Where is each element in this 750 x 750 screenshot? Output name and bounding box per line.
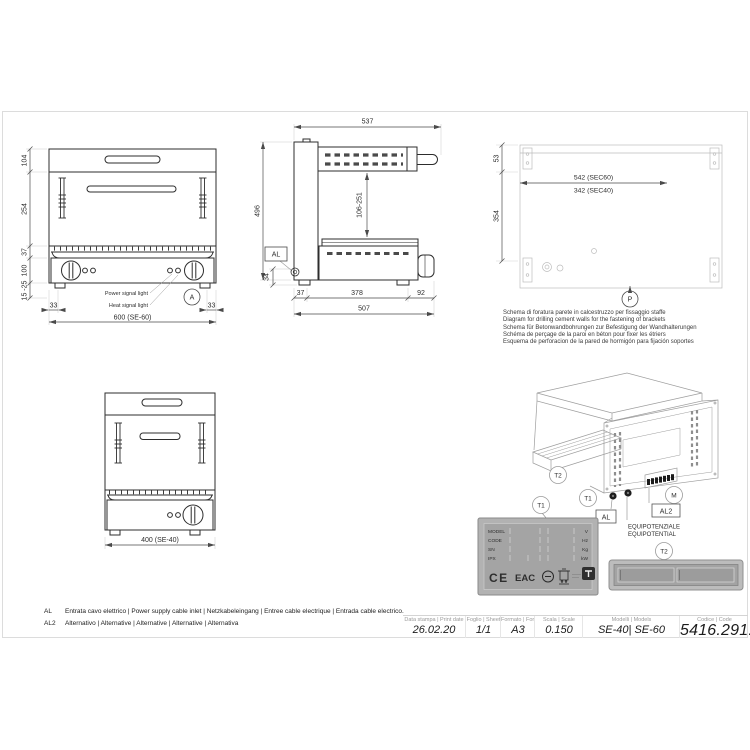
plate-code-label: CODE <box>488 538 502 544</box>
power-signal-light-label: Power signal light <box>105 291 149 297</box>
al-label-side: AL <box>272 252 281 259</box>
isometric-rear-view: T2 T1 T1 M T2 AL AL2 EQUIPOTENZIALE EQUI… <box>470 360 750 608</box>
titleblock-print-date: Data stampa | Print date 26.02.20 <box>403 616 465 638</box>
titleblock-scale: Scala | Scale 0.150 <box>534 616 583 638</box>
oven-body-side <box>291 139 438 285</box>
bracket-bottom-right <box>710 258 719 282</box>
bracket-top-right <box>710 148 719 169</box>
eac-mark: EAC <box>515 573 535 584</box>
drilling-note-fr: Schéma de perçage de la paroi en béton p… <box>503 332 697 339</box>
cable-hole-alt <box>557 265 563 271</box>
foot <box>299 280 310 285</box>
bracket-top-left <box>523 148 532 169</box>
models-value: SE-40| SE-60 <box>583 624 680 637</box>
signal-light <box>83 268 88 273</box>
callouts-front60: Power signal light Heat signal light A <box>105 274 200 309</box>
bracket-bottom-left <box>523 258 532 282</box>
door-handle-slot <box>140 433 180 440</box>
note-al2: AL2Alternativo | Alternative | Alternati… <box>44 618 404 630</box>
lift-handle <box>417 155 438 165</box>
dim-104: 104 <box>22 155 29 167</box>
dim-342-sec40: 342 (SEC40) <box>574 188 613 195</box>
label-t1-left: T1 <box>537 503 545 510</box>
dimension-lines-side <box>263 127 441 314</box>
note-al-text: Entrata cavo elettrico | Power supply ca… <box>65 608 404 615</box>
foot <box>55 283 65 288</box>
right-rail <box>199 178 207 218</box>
dim-600-se60: 600 (SE-60) <box>114 315 152 322</box>
plate-sn-label: SN <box>488 547 495 553</box>
sheet-label: Foglio | Sheet <box>466 617 501 624</box>
control-panel-front40 <box>107 500 213 530</box>
heat-signal-light <box>176 268 181 273</box>
scale-value: 0.150 <box>535 624 583 637</box>
grill-shelf <box>49 246 216 258</box>
iso-top-face <box>537 373 702 413</box>
print-date-value: 26.02.20 <box>403 624 465 637</box>
plate-kg-label: Kg <box>582 547 588 553</box>
dim-37-side: 37 <box>297 290 305 297</box>
dim-15-25: 15 -25 <box>22 280 29 300</box>
extension-lines-front60 <box>26 149 216 325</box>
sheet-value: 1/1 <box>466 624 501 637</box>
format-label: Formato | Format <box>501 617 535 624</box>
plate-model-label: MODEL <box>488 529 505 535</box>
power-signal-light <box>168 513 173 518</box>
control-panel-front60 <box>51 258 214 283</box>
label-t2-bottom: T2 <box>660 549 668 556</box>
dim-53: 53 <box>494 155 501 163</box>
front-view-se60: 104 254 37 100 15 -25 33 33 600 (SE-60) … <box>0 95 250 345</box>
note-al2-text: Alternativo | Alternative | Alternative … <box>65 620 238 627</box>
dim-354: 354 <box>494 210 501 222</box>
cable-inlet-notes: ALEntrata cavo elettrico | Power supply … <box>44 606 404 630</box>
label-equipotential: EQUIPOTENTIAL <box>628 532 677 538</box>
top-handle-slot <box>142 399 182 406</box>
knob-right <box>185 261 204 280</box>
al-callout-side: AL <box>265 247 291 270</box>
scale-label: Scala | Scale <box>535 617 583 624</box>
label-al: AL <box>602 515 611 522</box>
front-view-se40: 400 (SE-40) <box>95 385 230 565</box>
dim-34: 34 <box>264 273 271 281</box>
dim-400-se40: 400 (SE-40) <box>141 537 179 544</box>
code-value: 5416.291.00 <box>680 624 749 638</box>
dim-text-side: 537 496 106-251 34 37 378 92 507 <box>255 119 425 313</box>
label-t1-right: T1 <box>584 496 592 503</box>
plate-kw-label: kW <box>581 556 588 562</box>
drilling-note-it: Schema di foratura parete in calcestruzz… <box>503 310 697 317</box>
detail-p-label: P <box>628 297 633 304</box>
dim-33-right: 33 <box>208 303 216 310</box>
dim-378: 378 <box>351 290 363 297</box>
cable-hole <box>543 263 552 272</box>
drawing-sheet: 104 254 37 100 15 -25 33 33 600 (SE-60) … <box>0 0 750 750</box>
p-callout: P <box>622 291 638 307</box>
heat-signal-light-label: Heat signal light <box>109 303 149 309</box>
side-plug <box>418 255 434 277</box>
drilling-note-de: Schema für Betonwandbohrungen zur Befest… <box>503 325 697 332</box>
brand-logo-icon <box>582 567 595 580</box>
plate-hz-label: Hz <box>582 538 588 544</box>
foot <box>200 283 210 288</box>
note-al2-key: AL2 <box>44 618 65 630</box>
dimension-lines-plan <box>500 143 668 292</box>
iso-access-panel <box>623 428 680 467</box>
extension-lines-side <box>260 124 441 317</box>
titleblock-format: Formato | Format A3 <box>500 616 535 638</box>
format-value: A3 <box>501 624 535 637</box>
right-rail <box>198 423 206 463</box>
cable-gland <box>291 268 299 276</box>
ce-mark: CE <box>489 571 509 585</box>
dim-100: 100 <box>22 265 29 277</box>
t2-sticker-strip <box>609 560 743 590</box>
dim-542-sec60: 542 (SEC60) <box>574 175 613 182</box>
lower-body <box>319 246 418 280</box>
signal-light <box>91 268 96 273</box>
titleblock-code: Codice | Code 5416.291.00 <box>679 616 749 638</box>
titleblock-models: Modelli | Models SE-40| SE-60 <box>582 616 680 638</box>
oven-body-front60 <box>49 149 216 288</box>
label-al2: AL2 <box>660 509 673 516</box>
drilling-note: Schema di foratura parete in calcestruzz… <box>503 310 697 346</box>
terminal-block <box>647 474 674 485</box>
left-rail <box>115 423 123 463</box>
rating-plate: MODEL CODE SN IPX V Hz Kg kW CE EAC <box>478 518 598 595</box>
dim-33-left: 33 <box>50 303 58 310</box>
dim-text-plan: 53 354 542 (SEC60) 342 (SEC40) <box>494 155 614 222</box>
grill-shelf <box>105 490 215 500</box>
dim-496: 496 <box>255 205 262 217</box>
dim-537: 537 <box>362 119 374 126</box>
knob <box>183 505 203 525</box>
foot <box>190 530 200 535</box>
note-al-key: AL <box>44 606 65 618</box>
heat-signal-light <box>176 513 181 518</box>
drilling-note-es: Esquema de perforacion de la pared de ho… <box>503 339 697 346</box>
dim-37: 37 <box>22 248 29 256</box>
models-label: Modelli | Models <box>583 617 680 624</box>
top-heating-arm <box>318 147 417 171</box>
dim-106-251: 106-251 <box>357 192 364 218</box>
titleblock-sheet: Foglio | Sheet 1/1 <box>465 616 501 638</box>
dim-92: 92 <box>417 290 425 297</box>
note-al: ALEntrata cavo elettrico | Power supply … <box>44 606 404 618</box>
print-date-label: Data stampa | Print date <box>403 617 465 624</box>
plate-ipx-label: IPX <box>488 556 497 562</box>
title-block: Data stampa | Print date 26.02.20 Foglio… <box>403 615 748 638</box>
side-view: 537 496 106-251 34 37 378 92 507 AL <box>255 95 485 335</box>
foot <box>397 280 409 285</box>
label-m: M <box>671 493 676 500</box>
door-handle-slot <box>87 186 176 192</box>
back-column <box>294 142 318 280</box>
power-signal-light <box>168 268 173 273</box>
foot <box>110 530 120 535</box>
left-rail <box>59 178 67 218</box>
dim-254: 254 <box>22 203 29 215</box>
wall-drilling-plan-view: 53 354 542 (SEC60) 342 (SEC40) P <box>490 115 745 310</box>
top-handle-slot <box>105 156 160 163</box>
oven-body-front40 <box>105 393 215 535</box>
knob-left <box>62 261 81 280</box>
dim-507: 507 <box>358 306 370 313</box>
label-t2-top: T2 <box>554 473 562 480</box>
wall-outline <box>520 145 722 288</box>
label-equipotenziale: EQUIPOTENZIALE <box>628 525 680 531</box>
detail-a-label: A <box>190 295 195 302</box>
drilling-note-en: Diagram for drilling cement walls for th… <box>503 317 697 324</box>
